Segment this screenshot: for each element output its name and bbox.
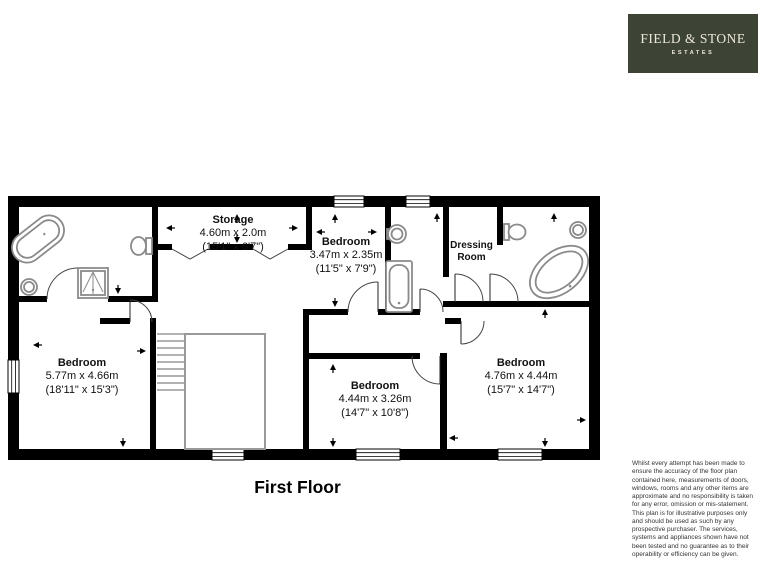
room-name: Bedroom	[305, 380, 445, 393]
door-arc	[490, 274, 518, 302]
room-name: Dressing Room	[443, 240, 500, 264]
door-arc	[348, 282, 378, 312]
sink	[21, 279, 37, 295]
toilet	[504, 224, 526, 240]
door-arc	[130, 300, 152, 322]
logo-brand-text: FIELD & STONE	[640, 31, 745, 47]
door-arc	[47, 268, 78, 299]
room-dim-imperial: (18'11" x 15'3")	[12, 384, 152, 397]
window	[334, 196, 364, 207]
window	[212, 449, 244, 460]
logo-sub-text: ESTATES	[672, 50, 715, 56]
room-label-bedroom-small: Bedroom 3.47m x 2.35m (11'5" x 7'9")	[303, 236, 389, 276]
agency-logo: FIELD & STONE ESTATES	[628, 14, 758, 73]
door-arc	[461, 321, 484, 344]
room-dim-imperial: (14'7" x 10'8")	[305, 407, 445, 420]
room-name: Bedroom	[303, 236, 389, 249]
bath	[386, 261, 412, 312]
room-dim-metric: 5.77m x 4.66m	[12, 370, 152, 383]
disclaimer-text: Whilst every attempt has been made to en…	[632, 460, 758, 559]
plan-title: First Floor	[200, 477, 395, 498]
sink	[387, 225, 406, 243]
room-label-bedroom-right: Bedroom 4.76m x 4.44m (15'7" x 14'7")	[450, 357, 592, 397]
room-label-bedroom-left: Bedroom 5.77m x 4.66m (18'11" x 15'3")	[12, 357, 152, 397]
room-label-dressing-room: Dressing Room	[443, 240, 500, 264]
room-name: Bedroom	[450, 357, 592, 370]
room-label-storage: Storage 4.60m x 2.0m (15'1" x 6'7")	[160, 214, 306, 254]
door-arc	[420, 289, 443, 312]
room-dim-imperial: (15'7" x 14'7")	[450, 384, 592, 397]
window	[406, 196, 430, 207]
sink	[570, 222, 586, 238]
room-dim-metric: 4.44m x 3.26m	[305, 393, 445, 406]
window	[356, 449, 400, 460]
page: Storage 4.60m x 2.0m (15'1" x 6'7") Bedr…	[0, 0, 768, 576]
room-name: Bedroom	[12, 357, 152, 370]
toilet	[131, 237, 152, 255]
room-dim-metric: 4.76m x 4.44m	[450, 370, 592, 383]
room-label-bedroom-middle: Bedroom 4.44m x 3.26m (14'7" x 10'8")	[305, 380, 445, 420]
room-dim-imperial: (11'5" x 7'9")	[303, 263, 389, 276]
room-name: Storage	[160, 214, 306, 227]
room-dim-metric: 4.60m x 2.0m	[160, 227, 306, 240]
staircase	[157, 334, 265, 449]
room-dim-metric: 3.47m x 2.35m	[303, 249, 389, 262]
corner-bath	[520, 235, 598, 309]
door-arc	[455, 274, 483, 302]
room-dim-imperial: (15'1" x 6'7")	[160, 241, 306, 254]
shower	[78, 268, 108, 298]
stair-void	[185, 334, 265, 449]
window	[498, 449, 542, 460]
